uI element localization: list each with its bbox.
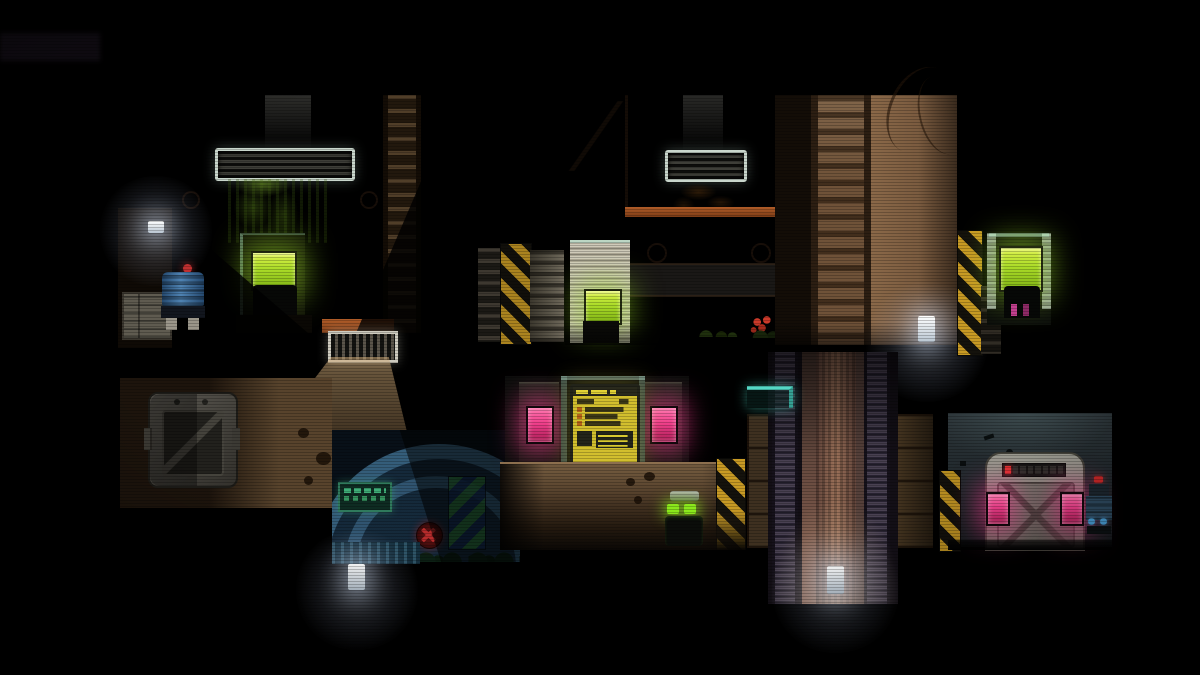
room-lower-left <box>120 378 332 508</box>
screen-footer <box>577 431 633 448</box>
corridor-shade <box>500 464 746 550</box>
room-upper-left <box>170 95 470 333</box>
screen-list-row <box>577 414 633 419</box>
shaft-wall-right-panels <box>897 414 933 548</box>
ceiling-vent-middle <box>665 150 747 182</box>
player-helmet <box>670 491 699 501</box>
player-body <box>665 516 703 546</box>
hazard-column-mid <box>500 243 532 345</box>
indicator-cell <box>1058 466 1064 474</box>
screen-glyph-row <box>577 399 633 404</box>
wall-scratch <box>960 461 966 466</box>
player-clone-robot[interactable] <box>663 490 705 546</box>
ceiling-light-beam <box>683 95 723 153</box>
barrel-robot-body <box>162 272 204 306</box>
terminal-alcove-middle <box>561 376 645 472</box>
terminal-pillar-left <box>519 382 559 468</box>
ceiling-light-beam <box>265 95 311 150</box>
blue-lit-platform <box>332 542 420 564</box>
sentry-robot-body <box>1086 496 1112 520</box>
pink-door-light-left <box>986 492 1010 526</box>
floor-lamp-shaft <box>827 566 844 594</box>
wall-rivet-circle <box>182 191 200 209</box>
wall-rivet-circle <box>647 243 667 263</box>
sentry-robot[interactable] <box>1086 476 1112 534</box>
terminal-robot-silhouette <box>1004 286 1040 318</box>
barrel-robot-band <box>161 306 205 318</box>
teal-ledge <box>747 386 793 408</box>
player-goggle-eye <box>667 504 679 514</box>
moss-spot <box>316 452 331 465</box>
pink-door-light-right <box>1060 492 1084 526</box>
indicator-cell <box>1028 466 1034 474</box>
indicator-cell <box>1043 466 1049 474</box>
sign-glyph-row <box>344 488 386 493</box>
green-text-sign[interactable] <box>338 482 392 512</box>
sentry-robot-base <box>1087 526 1111 534</box>
moss-spot <box>626 478 635 486</box>
moss-spot <box>634 496 642 504</box>
door-indicator-strip <box>1002 463 1066 477</box>
sentry-robot-dot <box>1100 518 1107 525</box>
floor-shadow-lower-right <box>948 540 1112 550</box>
moss-spot <box>644 472 655 481</box>
player-goggle-eye <box>684 504 696 514</box>
rung-strip-left <box>478 248 500 342</box>
sign-glyph-row <box>344 496 386 501</box>
hazard-column-corridor <box>716 458 746 552</box>
screen-list-row <box>577 407 633 412</box>
airlock-door-hinge <box>232 428 240 450</box>
yellow-data-screen[interactable] <box>570 384 640 470</box>
indicator-cell <box>1013 466 1019 474</box>
alcove-top-light <box>989 233 1049 237</box>
airlock-door-shade <box>150 394 197 486</box>
rung-strip-right <box>530 250 564 342</box>
dark-structure-topleft <box>0 33 100 61</box>
right-wall-section <box>871 95 957 345</box>
sentry-robot-dot <box>1088 518 1095 525</box>
wall-lamp-left <box>148 221 164 233</box>
wall-rivet-circle <box>360 191 378 209</box>
right-wall-shade <box>871 95 957 345</box>
alcove-wall-strip <box>987 233 996 309</box>
airlock-door-bolt <box>202 399 208 405</box>
sentry-robot-head <box>1089 484 1109 496</box>
pink-indicator-left[interactable] <box>526 406 554 444</box>
airlock-door[interactable] <box>148 392 238 488</box>
ledge-orange-lip <box>625 207 777 217</box>
indicator-cell-red <box>1005 466 1011 474</box>
screen-title-bar <box>573 387 637 396</box>
pink-indicator-right[interactable] <box>650 406 678 444</box>
ceiling-vent-left <box>215 148 355 181</box>
terminal-nook-upper-right <box>987 233 1051 325</box>
corridor-lower-middle <box>500 462 746 550</box>
ladder-column-middle-room[interactable] <box>811 95 871 345</box>
wall-lamp-middle-room <box>918 316 935 342</box>
room-bottom-shade <box>565 323 957 345</box>
game-viewport[interactable] <box>0 0 1200 675</box>
dark-column <box>775 95 811 345</box>
barrel-robot-foot <box>188 318 199 330</box>
moss-spot <box>298 428 309 438</box>
silhouette-pink-accent <box>1023 304 1029 316</box>
indicator-cell <box>1020 466 1026 474</box>
green-door-screen[interactable] <box>584 289 622 325</box>
moss-spot <box>304 476 313 485</box>
wall-seam-diagonal <box>565 101 627 171</box>
indicator-cell <box>1035 466 1041 474</box>
room-upper-middle <box>565 95 957 345</box>
wall-rivet-circle <box>751 243 771 263</box>
barrel-robot[interactable] <box>161 264 205 330</box>
hazard-column-upper-right <box>957 230 983 356</box>
sentry-robot-light <box>1094 476 1103 483</box>
barrel-robot-foot <box>166 318 177 330</box>
floor-lamp-dome <box>348 564 365 590</box>
alcove-wall-strip <box>1042 233 1051 309</box>
silhouette-pink-accent <box>1011 304 1017 316</box>
terminal-pillar-right <box>642 382 682 468</box>
wall-scratch <box>984 434 995 441</box>
indicator-cell <box>1050 466 1056 474</box>
screen-list-row <box>577 421 633 426</box>
